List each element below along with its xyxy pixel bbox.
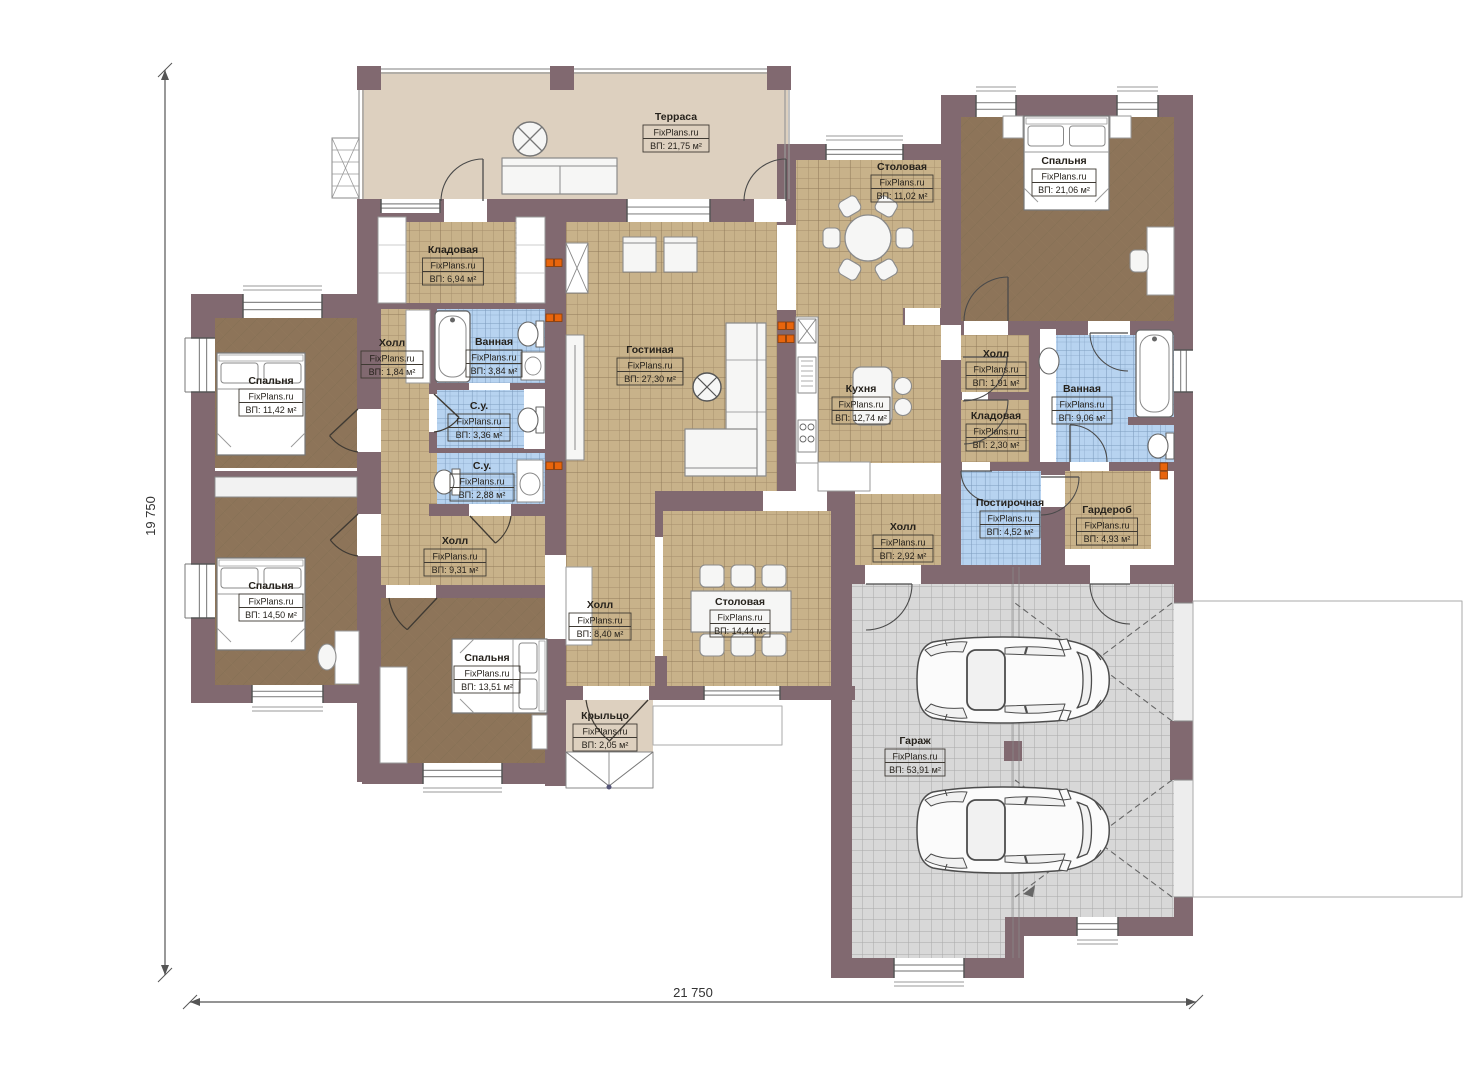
svg-text:ВП: 3,84 м²: ВП: 3,84 м²	[471, 366, 518, 376]
svg-text:FixPlans.ru: FixPlans.ru	[582, 727, 627, 737]
svg-text:FixPlans.ru: FixPlans.ru	[432, 552, 477, 562]
svg-text:ВП: 2,92 м²: ВП: 2,92 м²	[880, 551, 927, 561]
svg-text:ВП: 4,52 м²: ВП: 4,52 м²	[987, 527, 1034, 537]
svg-text:ВП: 2,30 м²: ВП: 2,30 м²	[973, 440, 1020, 450]
svg-text:Терраса: Терраса	[655, 111, 697, 123]
svg-text:FixPlans.ru: FixPlans.ru	[653, 128, 698, 138]
svg-text:FixPlans.ru: FixPlans.ru	[1084, 521, 1129, 531]
svg-text:ВП: 14,44 м²: ВП: 14,44 м²	[714, 626, 766, 636]
svg-text:FixPlans.ru: FixPlans.ru	[471, 353, 516, 363]
svg-text:ВП: 4,93 м²: ВП: 4,93 м²	[1084, 534, 1131, 544]
svg-text:FixPlans.ru: FixPlans.ru	[880, 538, 925, 548]
svg-text:Спальня: Спальня	[1041, 155, 1086, 167]
svg-text:ВП: 53,91 м²: ВП: 53,91 м²	[889, 765, 941, 775]
svg-text:Гардероб: Гардероб	[1082, 504, 1132, 516]
svg-text:FixPlans.ru: FixPlans.ru	[369, 354, 414, 364]
svg-text:ВП: 2,05 м²: ВП: 2,05 м²	[582, 740, 629, 750]
svg-text:С.у.: С.у.	[470, 400, 488, 412]
svg-text:ВП: 3,36 м²: ВП: 3,36 м²	[456, 430, 503, 440]
svg-text:Холл: Холл	[442, 535, 468, 547]
svg-text:FixPlans.ru: FixPlans.ru	[248, 597, 293, 607]
svg-text:Кухня: Кухня	[846, 383, 877, 395]
svg-text:ВП: 9,06 м²: ВП: 9,06 м²	[1059, 413, 1106, 423]
svg-text:FixPlans.ru: FixPlans.ru	[456, 417, 501, 427]
svg-text:Постирочная: Постирочная	[976, 497, 1044, 509]
svg-text:Ванная: Ванная	[475, 336, 513, 348]
svg-text:Кладовая: Кладовая	[428, 244, 478, 256]
svg-text:Спальня: Спальня	[248, 580, 293, 592]
svg-text:ВП: 1,84 м²: ВП: 1,84 м²	[369, 367, 416, 377]
svg-text:FixPlans.ru: FixPlans.ru	[987, 514, 1032, 524]
svg-text:FixPlans.ru: FixPlans.ru	[838, 400, 883, 410]
svg-text:19 750: 19 750	[143, 496, 158, 536]
svg-text:Столовая: Столовая	[877, 161, 927, 173]
svg-text:FixPlans.ru: FixPlans.ru	[973, 365, 1018, 375]
svg-text:Крыльцо: Крыльцо	[581, 710, 629, 722]
svg-text:FixPlans.ru: FixPlans.ru	[973, 427, 1018, 437]
svg-text:21 750: 21 750	[673, 985, 713, 1000]
svg-text:FixPlans.ru: FixPlans.ru	[459, 477, 504, 487]
svg-text:ВП: 11,02 м²: ВП: 11,02 м²	[876, 191, 927, 201]
svg-text:Холл: Холл	[890, 521, 916, 533]
svg-text:ВП: 27,30 м²: ВП: 27,30 м²	[624, 374, 676, 384]
svg-text:ВП: 8,40 м²: ВП: 8,40 м²	[577, 629, 624, 639]
svg-text:Гараж: Гараж	[899, 735, 931, 747]
svg-text:FixPlans.ru: FixPlans.ru	[430, 261, 475, 271]
svg-text:FixPlans.ru: FixPlans.ru	[717, 613, 762, 623]
svg-text:Спальня: Спальня	[248, 375, 293, 387]
svg-text:Спальня: Спальня	[464, 652, 509, 664]
svg-text:FixPlans.ru: FixPlans.ru	[577, 616, 622, 626]
svg-text:Холл: Холл	[587, 599, 613, 611]
svg-text:Ванная: Ванная	[1063, 383, 1101, 395]
svg-text:ВП: 21,75 м²: ВП: 21,75 м²	[650, 141, 702, 151]
svg-text:Холл: Холл	[379, 337, 405, 349]
svg-text:FixPlans.ru: FixPlans.ru	[248, 392, 293, 402]
svg-text:ВП: 6,94 м²: ВП: 6,94 м²	[430, 274, 477, 284]
svg-text:Гостиная: Гостиная	[626, 344, 673, 356]
svg-text:FixPlans.ru: FixPlans.ru	[1041, 172, 1086, 182]
svg-text:Столовая: Столовая	[715, 596, 765, 608]
svg-text:ВП: 14,50 м²: ВП: 14,50 м²	[245, 610, 297, 620]
svg-text:ВП: 12,74 м²: ВП: 12,74 м²	[835, 413, 887, 423]
svg-text:FixPlans.ru: FixPlans.ru	[627, 361, 672, 371]
svg-text:FixPlans.ru: FixPlans.ru	[1059, 400, 1104, 410]
svg-text:ВП: 13,51 м²: ВП: 13,51 м²	[461, 682, 513, 692]
svg-text:ВП: 2,88 м²: ВП: 2,88 м²	[459, 490, 506, 500]
svg-text:ВП: 11,42 м²: ВП: 11,42 м²	[245, 405, 296, 415]
svg-text:ВП: 21,06 м²: ВП: 21,06 м²	[1038, 185, 1090, 195]
svg-text:Холл: Холл	[983, 348, 1009, 360]
svg-text:Кладовая: Кладовая	[971, 410, 1021, 422]
svg-text:ВП: 9,31 м²: ВП: 9,31 м²	[432, 565, 479, 575]
svg-text:ВП: 1,91 м²: ВП: 1,91 м²	[973, 378, 1020, 388]
svg-text:FixPlans.ru: FixPlans.ru	[879, 178, 924, 188]
svg-text:С.у.: С.у.	[473, 460, 491, 472]
svg-text:FixPlans.ru: FixPlans.ru	[464, 669, 509, 679]
svg-text:FixPlans.ru: FixPlans.ru	[892, 752, 937, 762]
